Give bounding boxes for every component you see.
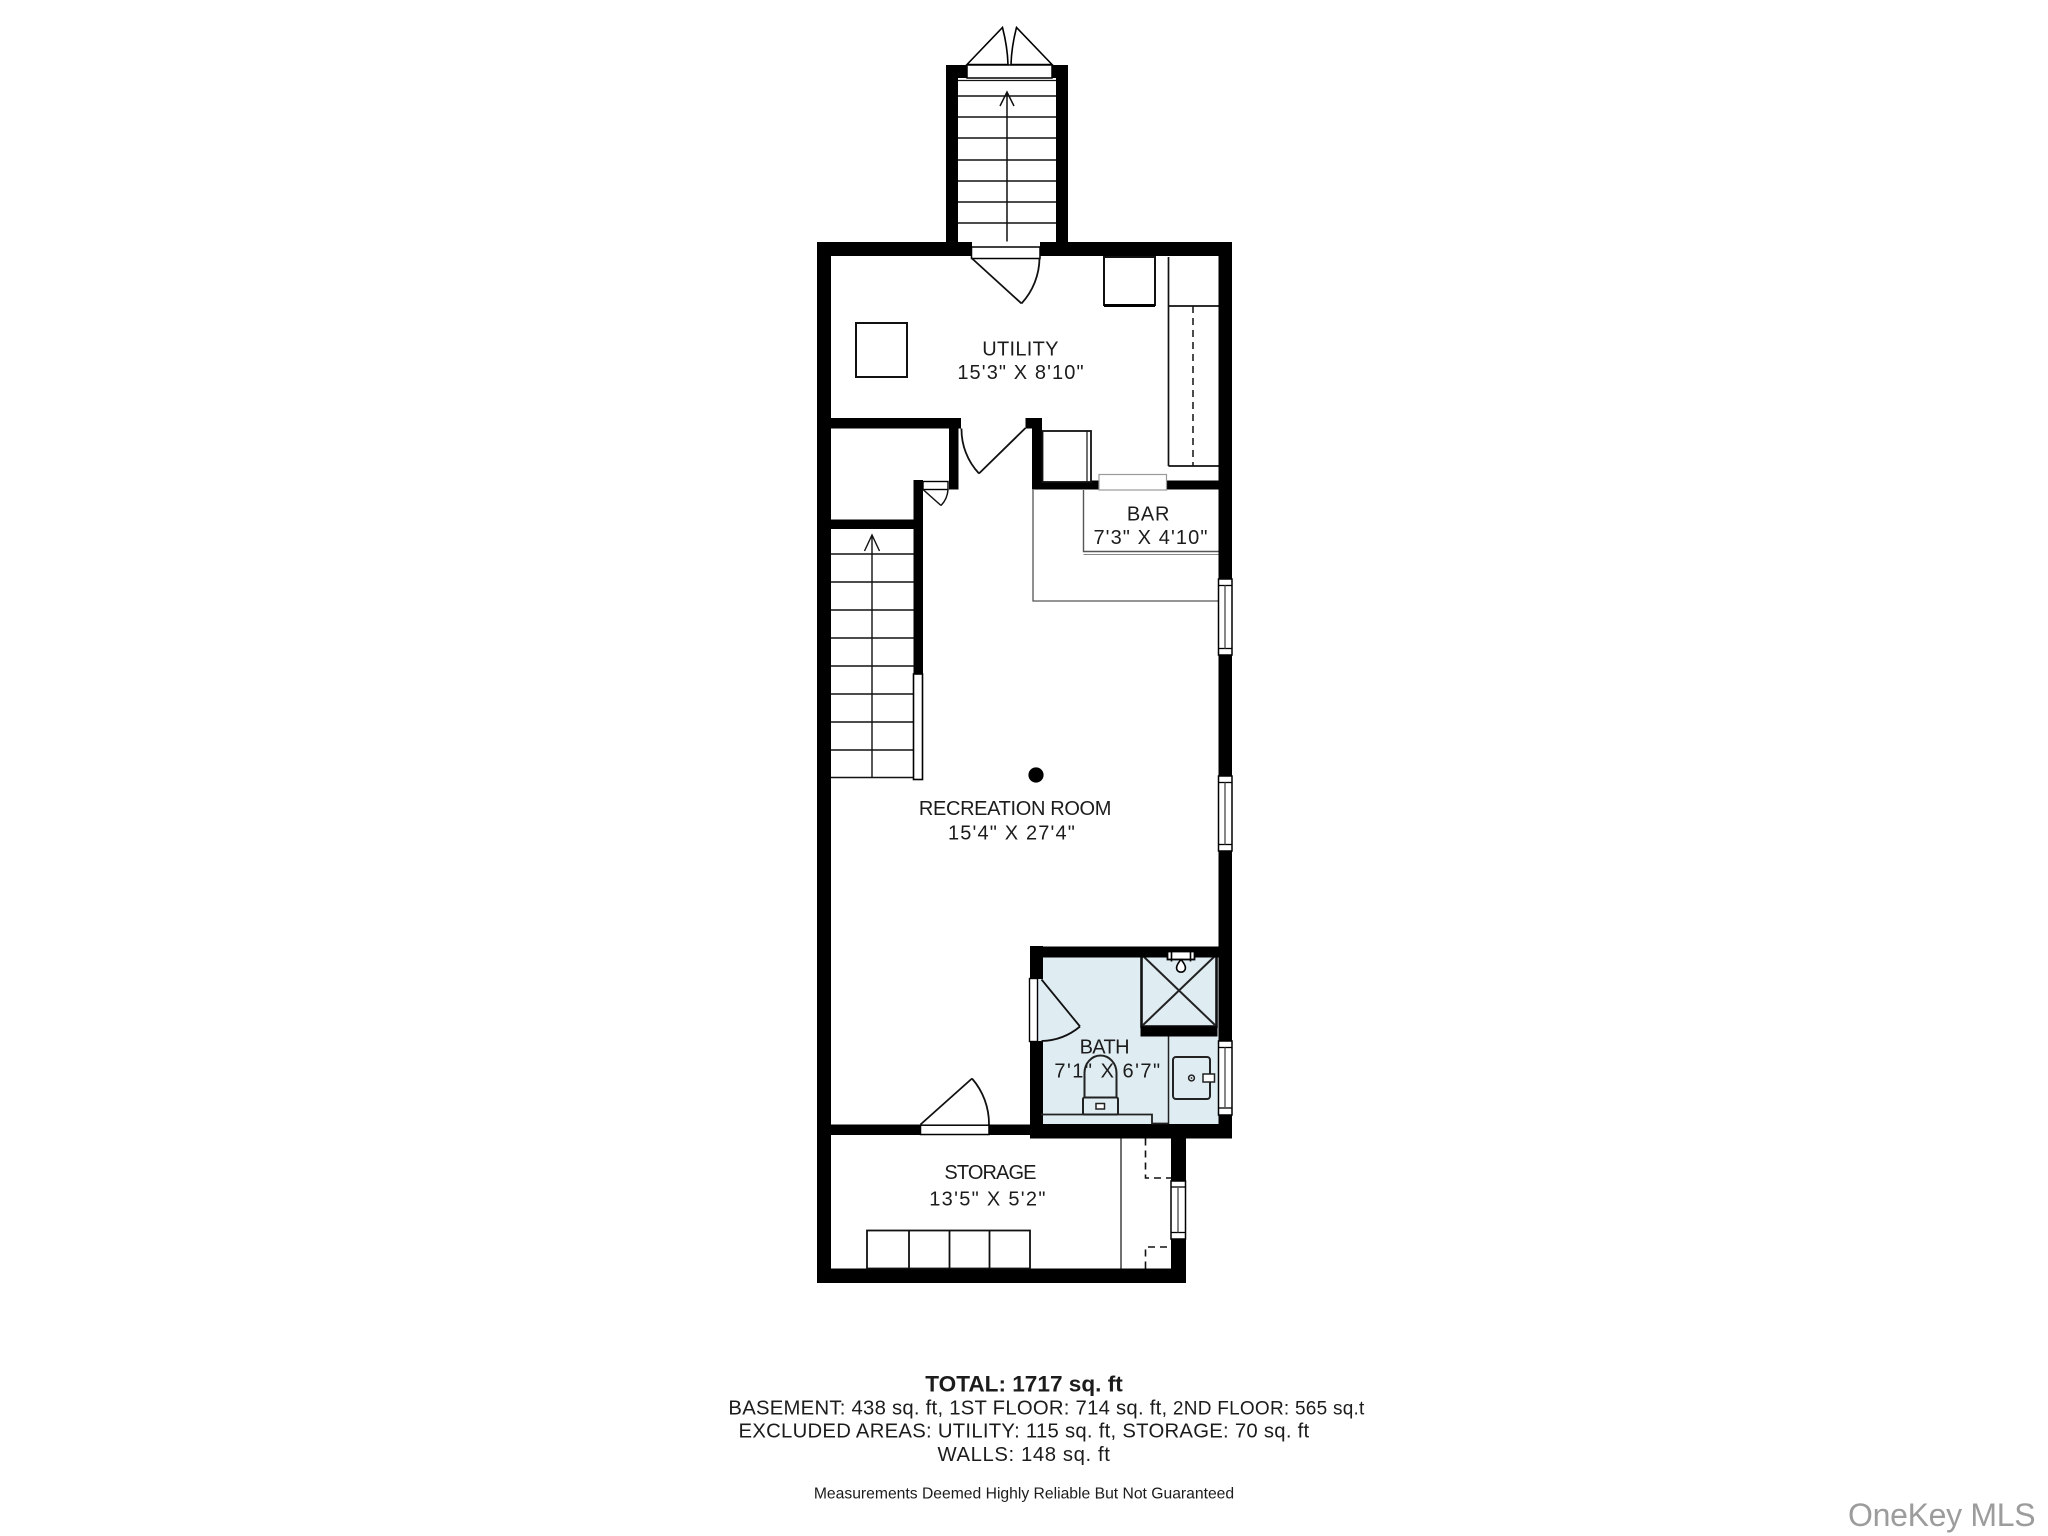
svg-text:UTILITY: UTILITY bbox=[982, 338, 1059, 360]
svg-text:15'3" X 8'10": 15'3" X 8'10" bbox=[957, 362, 1084, 384]
svg-text:OneKey MLS: OneKey MLS bbox=[1848, 1497, 2035, 1533]
svg-text:7'1" X 6'7": 7'1" X 6'7" bbox=[1054, 1060, 1161, 1082]
svg-text:BAR: BAR bbox=[1127, 503, 1170, 525]
svg-text:13'5" X 5'2": 13'5" X 5'2" bbox=[929, 1189, 1047, 1211]
svg-text:BASEMENT: 438 sq. ft, 1ST FLOO: BASEMENT: 438 sq. ft, 1ST FLOOR: 714 sq.… bbox=[728, 1398, 1365, 1420]
svg-text:WALLS: 148 sq. ft: WALLS: 148 sq. ft bbox=[938, 1444, 1111, 1466]
svg-text:RECREATION ROOM: RECREATION ROOM bbox=[919, 798, 1111, 820]
svg-text:EXCLUDED AREAS: UTILITY: 115 s: EXCLUDED AREAS: UTILITY: 115 sq. ft, STO… bbox=[739, 1421, 1310, 1443]
svg-text:BATH: BATH bbox=[1080, 1037, 1129, 1059]
svg-text:15'4" X 27'4": 15'4" X 27'4" bbox=[948, 823, 1076, 845]
svg-text:TOTAL: 1717 sq. ft: TOTAL: 1717 sq. ft bbox=[925, 1372, 1123, 1397]
svg-text:7'3" X 4'10": 7'3" X 4'10" bbox=[1093, 527, 1208, 549]
svg-text:Measurements Deemed Highly Rel: Measurements Deemed Highly Reliable But … bbox=[814, 1486, 1234, 1503]
svg-text:STORAGE: STORAGE bbox=[944, 1162, 1036, 1184]
